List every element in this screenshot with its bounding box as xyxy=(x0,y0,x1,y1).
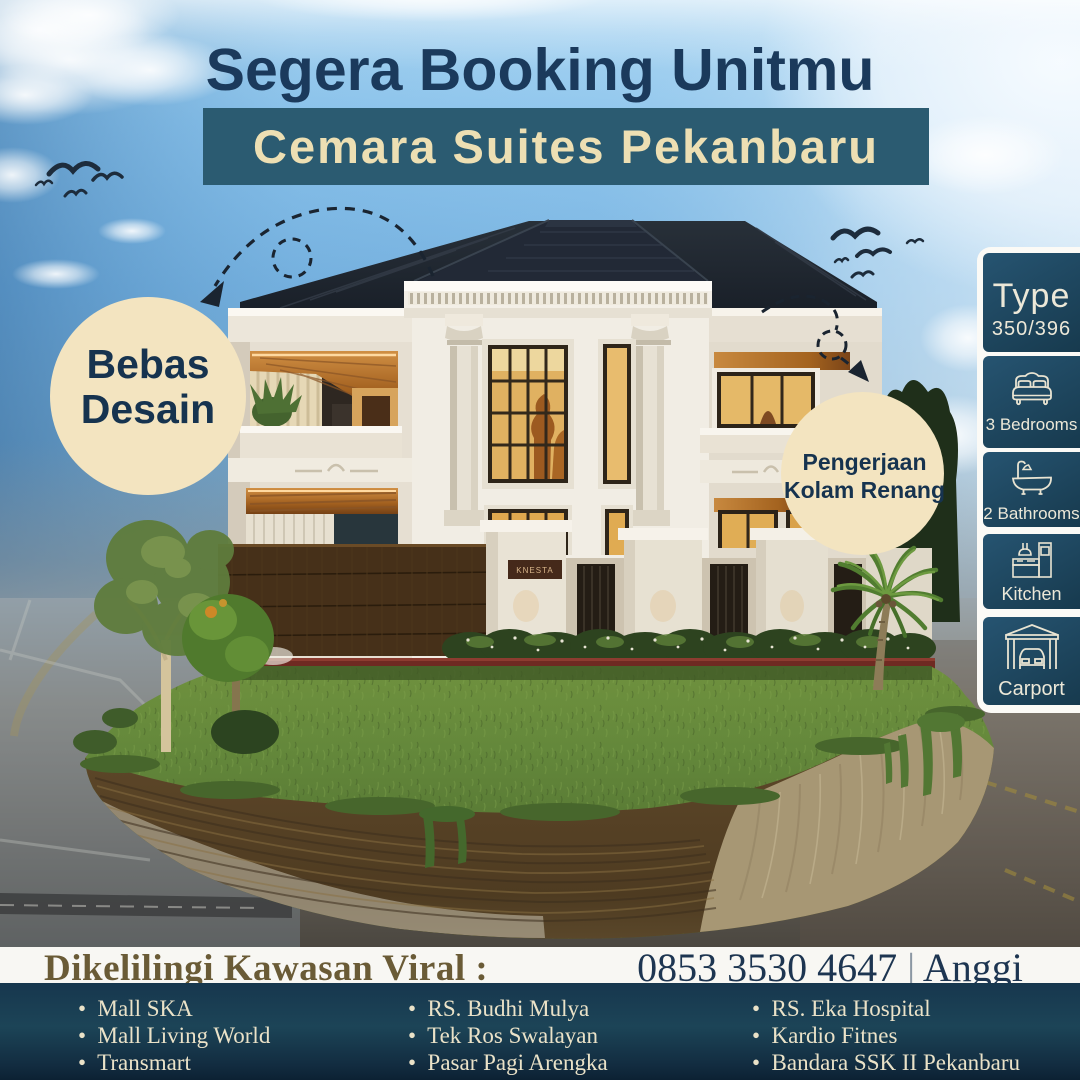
svg-text:KNESTA: KNESTA xyxy=(516,566,553,575)
